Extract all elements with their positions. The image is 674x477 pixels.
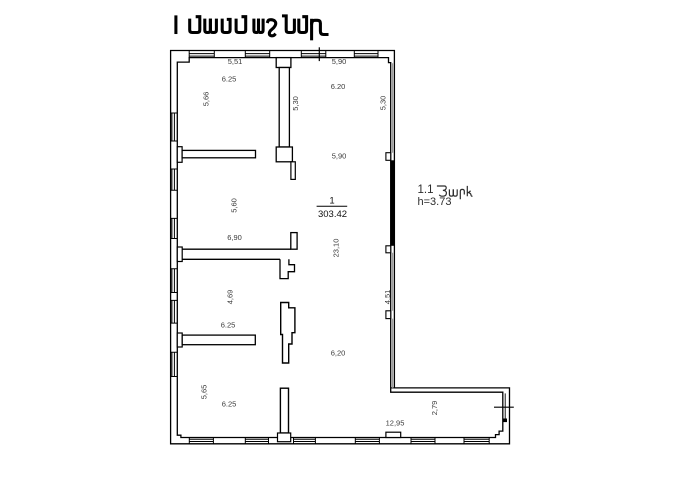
svg-text:h=3.73: h=3.73 xyxy=(418,196,452,208)
svg-text:12,95: 12,95 xyxy=(386,419,405,428)
svg-text:5,90: 5,90 xyxy=(332,152,347,161)
svg-text:5,90: 5,90 xyxy=(332,57,347,66)
svg-text:5,51: 5,51 xyxy=(228,57,243,66)
svg-text:303.42: 303.42 xyxy=(318,209,347,220)
svg-text:4,51: 4,51 xyxy=(383,290,392,305)
svg-text:4,69: 4,69 xyxy=(226,290,235,305)
svg-text:1.1: 1.1 xyxy=(418,184,434,196)
svg-text:5,30: 5,30 xyxy=(379,96,388,111)
svg-text:23,10: 23,10 xyxy=(332,239,341,258)
svg-text:5,66: 5,66 xyxy=(202,92,211,107)
svg-text:6.25: 6.25 xyxy=(222,75,237,84)
svg-text:5,65: 5,65 xyxy=(200,385,209,400)
svg-text:6,20: 6,20 xyxy=(331,349,346,358)
svg-text:6.25: 6.25 xyxy=(222,400,237,409)
svg-text:6.25: 6.25 xyxy=(221,321,236,330)
svg-text:6.20: 6.20 xyxy=(331,82,346,91)
svg-text:2,79: 2,79 xyxy=(430,401,439,416)
svg-text:1: 1 xyxy=(329,196,334,207)
svg-text:6,90: 6,90 xyxy=(227,233,242,242)
svg-text:5,30: 5,30 xyxy=(291,96,300,111)
svg-text:5,60: 5,60 xyxy=(230,198,239,213)
